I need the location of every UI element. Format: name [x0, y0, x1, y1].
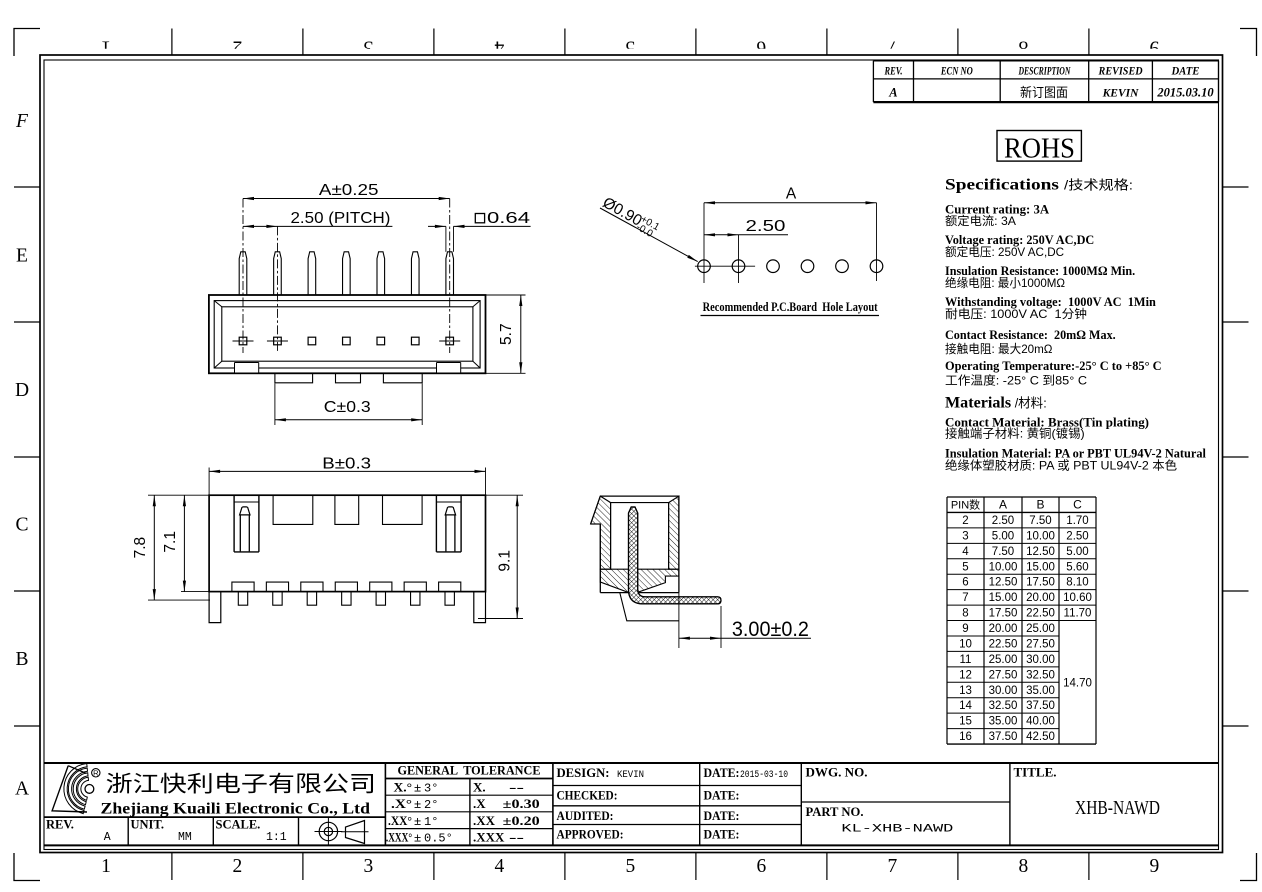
svg-text:Zhejiang Kuaili Electronic Co.: Zhejiang Kuaili Electronic Co., Ltd	[101, 801, 371, 818]
svg-text:7.1: 7.1	[162, 531, 179, 553]
svg-text:SCALE.: SCALE.	[216, 818, 261, 832]
svg-text:2.50: 2.50	[992, 515, 1014, 527]
svg-text:KL-XHB-NAWD: KL-XHB-NAWD	[841, 824, 954, 836]
svg-text:DATE:: DATE:	[704, 766, 740, 780]
svg-text:3°: 3°	[424, 781, 438, 795]
svg-text:耐电压: 1000V AC 1分钟: 耐电压: 1000V AC 1分钟	[945, 306, 1087, 321]
svg-text:.X: .X	[473, 796, 486, 811]
svg-text:2°: 2°	[424, 798, 438, 812]
svg-text:DATE: DATE	[1171, 64, 1200, 78]
svg-text:KEVIN: KEVIN	[1102, 88, 1139, 100]
svg-text:0.5°: 0.5°	[424, 832, 453, 846]
svg-text:Materials: Materials	[945, 395, 1011, 412]
svg-text:1: 1	[101, 856, 111, 877]
svg-text:工作温度: -25° C 到85° C: 工作温度: -25° C 到85° C	[945, 373, 1087, 388]
svg-text:C: C	[1073, 498, 1082, 512]
svg-text:B±0.3: B±0.3	[322, 456, 371, 473]
svg-text:F: F	[15, 111, 29, 132]
svg-text:5: 5	[962, 561, 968, 573]
svg-text:12.50: 12.50	[1026, 546, 1055, 558]
svg-text:42.50: 42.50	[1026, 731, 1055, 743]
svg-text:20.00: 20.00	[989, 623, 1018, 635]
svg-text:REV.: REV.	[46, 818, 74, 832]
svg-text:绝缘电阻: 最小1000MΩ: 绝缘电阻: 最小1000MΩ	[945, 275, 1065, 290]
svg-text:20.00: 20.00	[1026, 592, 1055, 604]
svg-text:17.50: 17.50	[1026, 577, 1055, 589]
svg-text:2015-03-10: 2015-03-10	[740, 770, 788, 781]
svg-text:7: 7	[962, 592, 968, 604]
svg-text:Contact Resistance: 20mΩ Max.: Contact Resistance: 20mΩ Max.	[945, 327, 1116, 342]
svg-text:32.50: 32.50	[1026, 669, 1055, 681]
svg-text:11.70: 11.70	[1064, 608, 1092, 620]
svg-text:9: 9	[962, 623, 968, 635]
svg-text:3: 3	[962, 530, 968, 542]
svg-text:DATE:: DATE:	[704, 809, 740, 823]
svg-text:15: 15	[959, 716, 972, 728]
svg-text:2: 2	[233, 856, 243, 877]
svg-text:10.60: 10.60	[1063, 592, 1092, 604]
svg-text:10: 10	[959, 638, 972, 650]
svg-text:Recommended P.C.Board Hole La: Recommended P.C.Board Hole Layout	[703, 299, 879, 314]
svg-text:B: B	[15, 649, 28, 670]
svg-text:A: A	[15, 779, 29, 800]
svg-text:15.00: 15.00	[1026, 561, 1055, 573]
svg-text:4: 4	[495, 856, 505, 877]
svg-text:8: 8	[1019, 856, 1029, 877]
svg-text:0.64: 0.64	[487, 210, 531, 227]
svg-text:±0.30: ±0.30	[503, 796, 540, 811]
svg-text:REV.: REV.	[884, 64, 903, 78]
svg-text:±: ±	[414, 796, 421, 811]
svg-text:DATE:: DATE:	[704, 828, 740, 842]
svg-text:5.60: 5.60	[1066, 561, 1088, 573]
svg-text:X.°: X.°	[394, 779, 413, 794]
svg-text:25.00: 25.00	[1026, 623, 1055, 635]
svg-text:额定电压: 250V AC,DC: 额定电压: 250V AC,DC	[945, 244, 1064, 259]
svg-text:PART NO.: PART NO.	[806, 805, 864, 819]
svg-text:REVISED: REVISED	[1098, 64, 1143, 78]
svg-text:14.70: 14.70	[1063, 677, 1092, 689]
svg-text:PIN数: PIN数	[951, 499, 980, 512]
svg-text:2.50: 2.50	[746, 218, 786, 235]
svg-text:6: 6	[962, 577, 968, 589]
svg-text:5.00: 5.00	[1066, 546, 1088, 558]
svg-text:±: ±	[414, 813, 421, 828]
svg-text:/技术规格:: /技术规格:	[1064, 177, 1133, 192]
svg-text:7.8: 7.8	[132, 537, 149, 559]
svg-text:接触端子材料: 黄铜(镀锡): 接触端子材料: 黄铜(镀锡)	[945, 426, 1085, 441]
svg-text:X.: X.	[473, 779, 486, 794]
svg-text:4: 4	[962, 546, 969, 558]
svg-text:9: 9	[1150, 856, 1160, 877]
svg-text:15.00: 15.00	[989, 592, 1018, 604]
svg-text:A: A	[888, 86, 897, 100]
svg-text:接触电阻: 最大20mΩ: 接触电阻: 最大20mΩ	[945, 341, 1053, 356]
svg-text:新订图面: 新订图面	[1020, 85, 1068, 100]
svg-text:Specifications: Specifications	[945, 176, 1059, 193]
svg-text:10.00: 10.00	[989, 561, 1018, 573]
svg-text:DWG. NO.: DWG. NO.	[806, 766, 868, 780]
svg-text:APPROVED:: APPROVED:	[557, 828, 624, 842]
svg-text:C: C	[15, 515, 28, 536]
svg-text:17.50: 17.50	[989, 608, 1018, 620]
svg-text:A: A	[999, 498, 1007, 512]
svg-text:XHB-NAWD: XHB-NAWD	[1075, 797, 1160, 819]
svg-text:12: 12	[959, 669, 972, 681]
svg-text:CHECKED:: CHECKED:	[557, 789, 618, 803]
svg-text:3: 3	[364, 856, 374, 877]
svg-text:7.50: 7.50	[992, 546, 1014, 558]
svg-text:7.50: 7.50	[1029, 515, 1051, 527]
svg-text:25.00: 25.00	[989, 654, 1018, 666]
svg-text:--: --	[509, 779, 524, 794]
svg-text:GENERAL TOLERANCE: GENERAL TOLERANCE	[398, 763, 541, 778]
svg-text:2: 2	[962, 515, 968, 527]
svg-text:22.50: 22.50	[1026, 608, 1055, 620]
svg-text:ECN NO: ECN NO	[940, 64, 973, 78]
svg-text:14: 14	[959, 700, 972, 712]
svg-text:40.00: 40.00	[1026, 716, 1055, 728]
svg-text:±: ±	[414, 779, 421, 794]
svg-text:绝缘体塑胶材质: PA 或 PBT UL94V-2 本色: 绝缘体塑胶材质: PA 或 PBT UL94V-2 本色	[945, 458, 1177, 473]
svg-text:5.7: 5.7	[498, 323, 515, 345]
svg-text:A: A	[786, 186, 797, 203]
svg-text:.XXX: .XXX	[473, 830, 505, 845]
svg-text:13: 13	[959, 685, 972, 697]
svg-text:5.00: 5.00	[992, 530, 1014, 542]
svg-text:UNIT.: UNIT.	[131, 818, 164, 832]
svg-text:Operating Temperature:-25° C t: Operating Temperature:-25° C to +85° C	[945, 358, 1162, 373]
svg-text:6: 6	[757, 856, 767, 877]
svg-text:A: A	[104, 831, 111, 844]
svg-text:R: R	[93, 769, 99, 778]
svg-text:11: 11	[960, 654, 972, 666]
svg-text:2015.03.10: 2015.03.10	[1156, 86, 1214, 100]
svg-text:KEVIN: KEVIN	[617, 770, 644, 781]
svg-text:27.50: 27.50	[1026, 638, 1055, 650]
svg-text:.XX: .XX	[473, 813, 496, 828]
svg-text:1.70: 1.70	[1066, 515, 1088, 527]
svg-text:/材料:: /材料:	[1015, 396, 1047, 411]
svg-text:ROHS: ROHS	[1004, 134, 1075, 165]
svg-text:30.00: 30.00	[1026, 654, 1055, 666]
svg-text:8: 8	[962, 608, 968, 620]
svg-text:5: 5	[626, 856, 636, 877]
svg-text:MM: MM	[178, 831, 192, 844]
svg-text:±: ±	[414, 830, 421, 845]
svg-text:35.00: 35.00	[989, 716, 1018, 728]
svg-text:TITLE.: TITLE.	[1014, 766, 1057, 780]
svg-text:9.1: 9.1	[497, 550, 514, 572]
svg-text:1°: 1°	[424, 815, 438, 829]
svg-text:额定电流: 3A: 额定电流: 3A	[945, 213, 1016, 228]
svg-text:10.00: 10.00	[1026, 530, 1055, 542]
svg-text:.XXX°: .XXX°	[386, 830, 412, 845]
svg-text:E: E	[16, 246, 28, 267]
svg-text:27.50: 27.50	[989, 669, 1018, 681]
svg-text:--: --	[509, 830, 524, 845]
svg-text:7: 7	[888, 856, 898, 877]
svg-text:DATE:: DATE:	[704, 789, 740, 803]
svg-text:DESCRIPTION: DESCRIPTION	[1018, 64, 1072, 78]
svg-text:.XX°: .XX°	[388, 813, 412, 828]
svg-text:8.10: 8.10	[1066, 577, 1088, 589]
svg-text:16: 16	[959, 731, 972, 743]
svg-text:32.50: 32.50	[989, 700, 1018, 712]
svg-text:2.50 (PITCH): 2.50 (PITCH)	[291, 210, 391, 227]
svg-text:DESIGN:: DESIGN:	[557, 766, 610, 780]
svg-text:C±0.3: C±0.3	[324, 399, 371, 416]
svg-text:D: D	[15, 380, 29, 401]
svg-text:AUDITED:: AUDITED:	[557, 809, 614, 823]
svg-text:37.50: 37.50	[989, 731, 1018, 743]
svg-text:±0.20: ±0.20	[503, 813, 540, 828]
svg-text:B: B	[1036, 498, 1044, 512]
svg-text:1:1: 1:1	[266, 831, 287, 844]
svg-text:35.00: 35.00	[1026, 685, 1055, 697]
svg-text:3.00±0.2: 3.00±0.2	[732, 618, 809, 641]
svg-text:37.50: 37.50	[1026, 700, 1055, 712]
svg-text:30.00: 30.00	[989, 685, 1018, 697]
svg-text:.X°: .X°	[391, 796, 412, 811]
svg-text:12.50: 12.50	[989, 577, 1018, 589]
svg-text:A±0.25: A±0.25	[319, 182, 379, 199]
svg-text:2.50: 2.50	[1066, 530, 1088, 542]
svg-text:浙江快利电子有限公司: 浙江快利电子有限公司	[106, 772, 376, 797]
svg-text:22.50: 22.50	[989, 638, 1018, 650]
